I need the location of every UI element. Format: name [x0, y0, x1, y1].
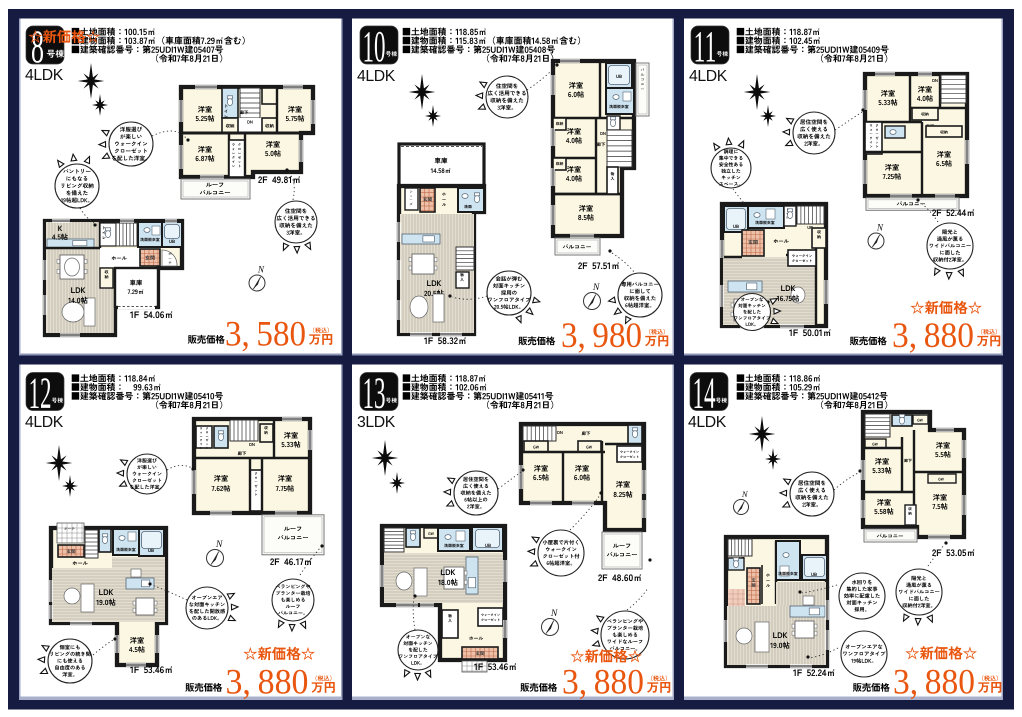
svg-text:4LDK: 4LDK	[357, 68, 396, 85]
svg-text:3, 880: 3, 880	[226, 662, 309, 702]
svg-text:10: 10	[363, 22, 386, 71]
svg-text:N: N	[592, 282, 600, 293]
svg-text:14: 14	[693, 369, 716, 418]
svg-text:4LDK: 4LDK	[25, 67, 64, 84]
svg-text:3, 880: 3, 880	[892, 315, 974, 355]
svg-text:11: 11	[694, 22, 717, 71]
svg-text:4LDK: 4LDK	[689, 68, 728, 85]
svg-text:3, 580: 3, 580	[225, 314, 306, 354]
svg-text:N: N	[550, 608, 558, 619]
svg-text:12: 12	[29, 369, 52, 418]
svg-text:4LDK: 4LDK	[25, 414, 64, 431]
svg-text:N: N	[257, 265, 265, 275]
svg-text:4LDK: 4LDK	[688, 414, 727, 431]
svg-text:13: 13	[363, 369, 386, 418]
svg-text:N: N	[215, 539, 223, 550]
svg-text:N: N	[876, 223, 884, 233]
svg-text:3, 880: 3, 880	[562, 662, 644, 702]
svg-text:3LDK: 3LDK	[357, 414, 396, 431]
svg-text:3, 880: 3, 880	[893, 662, 975, 702]
svg-text:8: 8	[31, 21, 44, 73]
svg-text:3, 980: 3, 980	[561, 315, 642, 355]
